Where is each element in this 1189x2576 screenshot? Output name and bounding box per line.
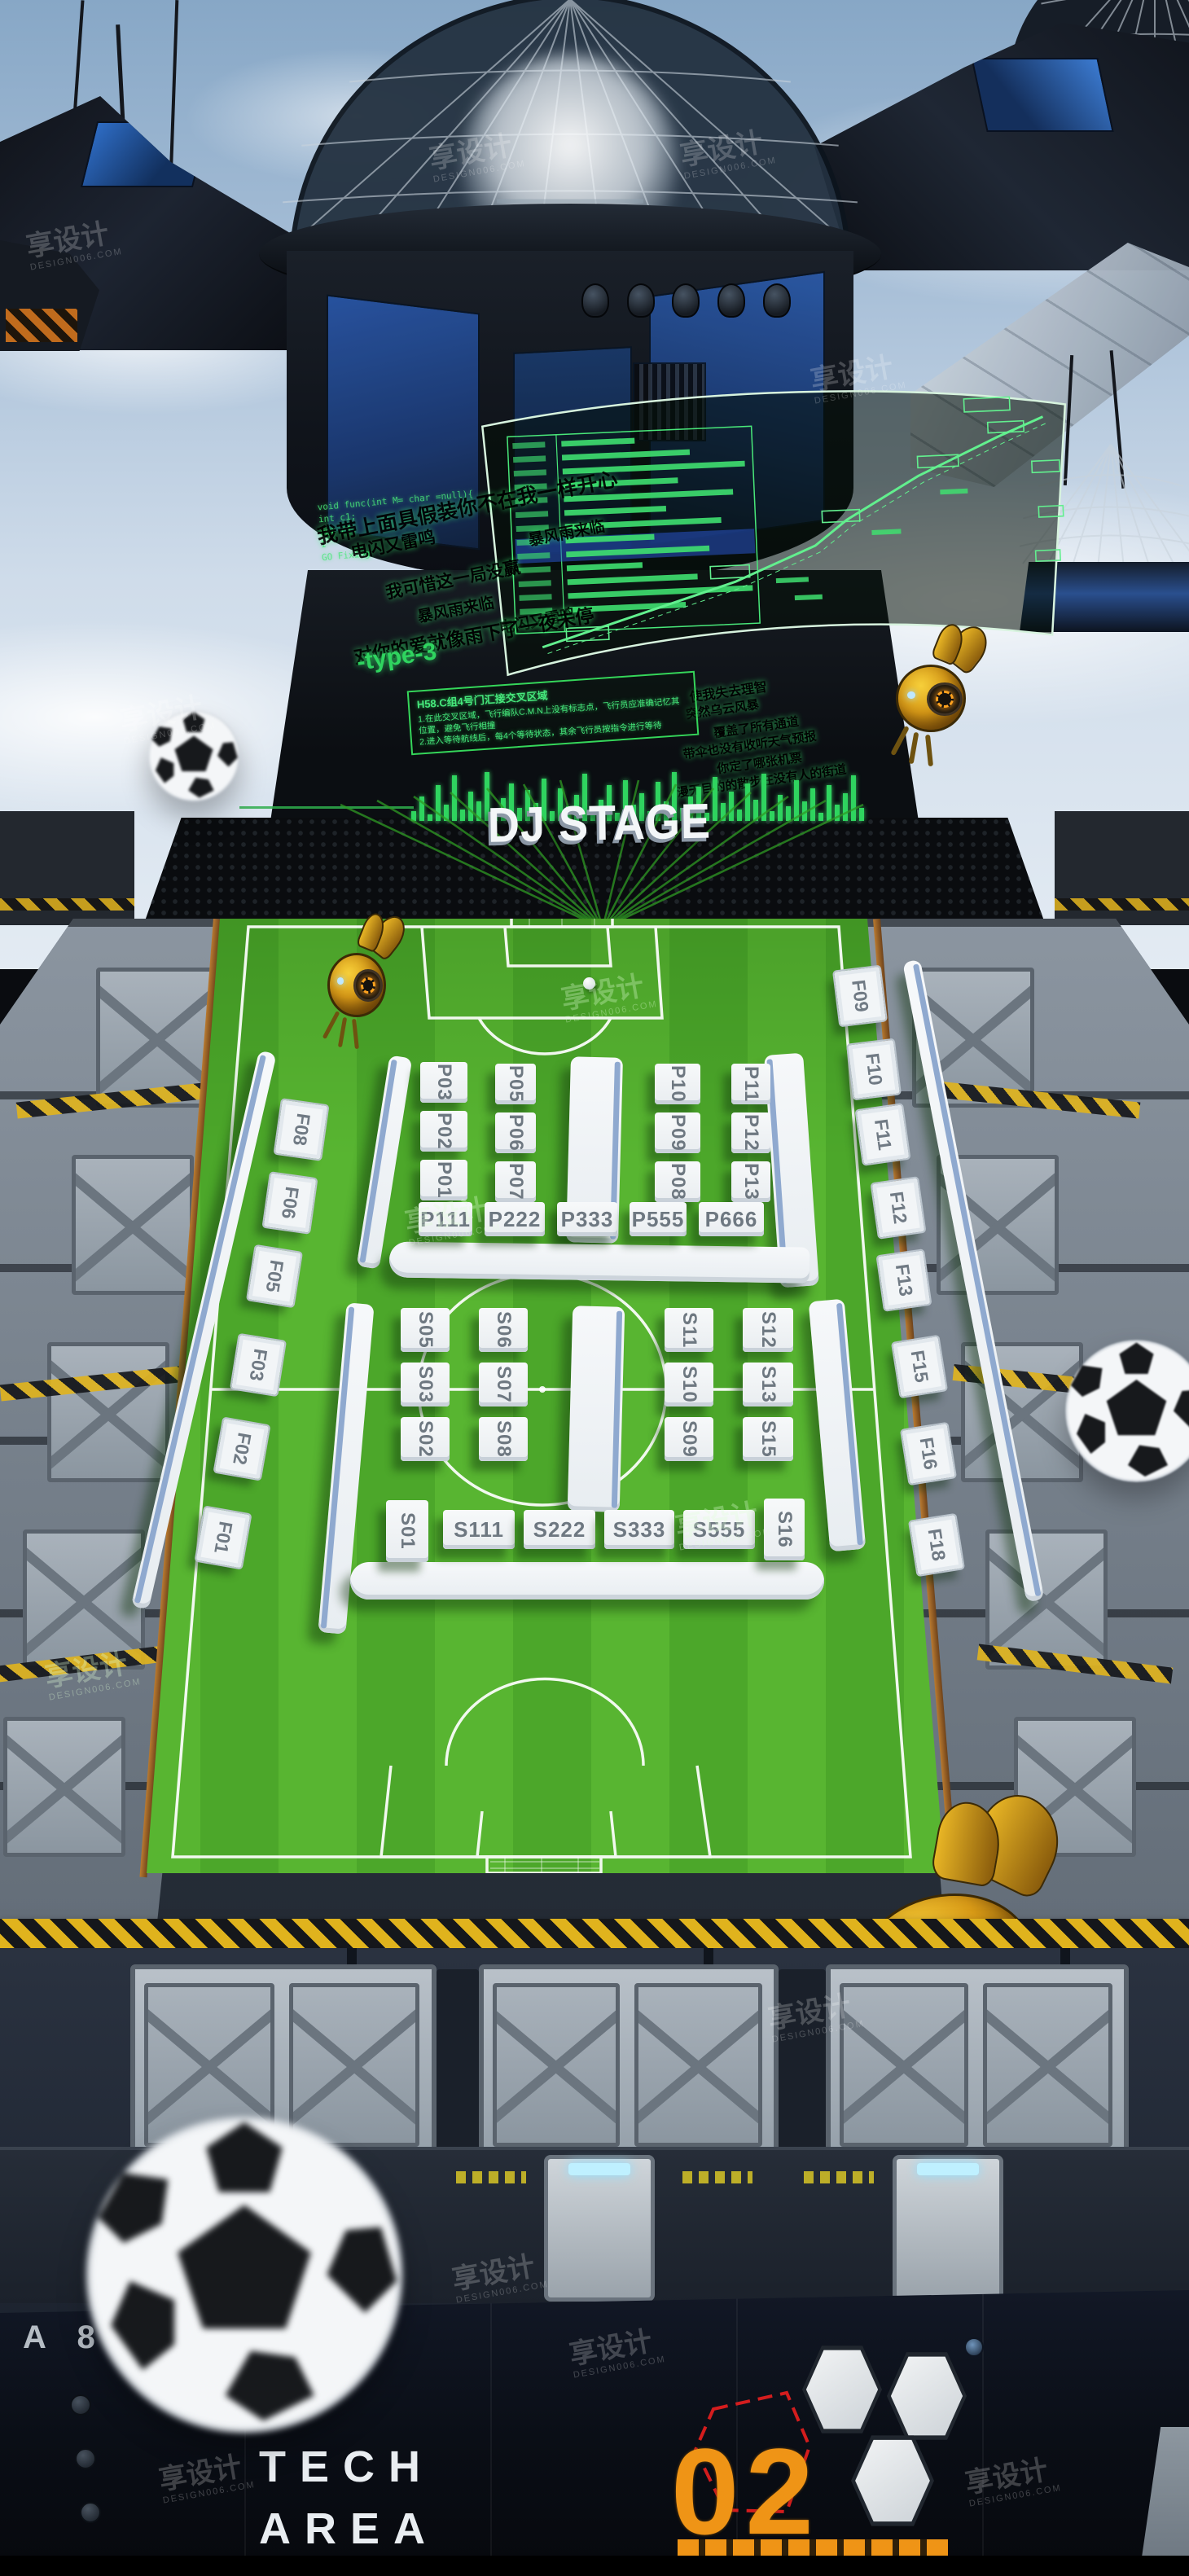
booth-S12[interactable]: S12	[743, 1308, 793, 1352]
deck-panel	[72, 1155, 194, 1295]
tech-area-text-line2: AREA	[259, 2504, 439, 2554]
deck-panel	[47, 1342, 169, 1482]
soccer-ball-large	[86, 2116, 403, 2433]
booth-column-s1: S05S03S02	[401, 1308, 450, 1461]
booth-F09[interactable]: F09	[834, 967, 886, 1025]
booth-S01[interactable]: S01	[386, 1500, 428, 1562]
booth-wall	[389, 1241, 810, 1283]
booth-F13[interactable]: F13	[878, 1250, 931, 1310]
booth-P07[interactable]: P07	[495, 1161, 536, 1202]
floor-bolt	[70, 2394, 91, 2416]
stand-corner-left	[0, 811, 134, 925]
floor-bolt	[75, 2448, 96, 2469]
booth-F18[interactable]: F18	[910, 1515, 963, 1575]
booth-P01[interactable]: P01	[420, 1160, 467, 1200]
booth-P111[interactable]: P111	[419, 1202, 472, 1236]
booth-column-s3: S11S10S09	[665, 1308, 713, 1461]
bay-seam	[437, 1969, 479, 2165]
deck-panel	[3, 1717, 125, 1857]
booth-P11[interactable]: P11	[731, 1064, 770, 1104]
booth-F08[interactable]: F08	[275, 1099, 328, 1159]
zone-number: 02	[671, 2430, 820, 2552]
booth-P12[interactable]: P12	[731, 1112, 770, 1153]
bay-panel	[826, 1964, 1129, 2170]
robot-drone	[892, 650, 989, 744]
booth-P08[interactable]: P08	[655, 1161, 700, 1202]
yellow-dash-strip	[682, 2171, 752, 2183]
booth-S555[interactable]: S555	[683, 1510, 755, 1549]
booth-P333[interactable]: P333	[557, 1202, 617, 1236]
booth-S10[interactable]: S10	[665, 1363, 713, 1406]
piston-unit	[544, 2155, 655, 2302]
booth-F10[interactable]: F10	[848, 1040, 900, 1099]
booth-wall	[568, 1306, 625, 1512]
booth-F16[interactable]: F16	[902, 1424, 955, 1484]
booth-column-p4: P11P12P13	[731, 1064, 770, 1202]
booth-P09[interactable]: P09	[655, 1112, 700, 1153]
booth-P02[interactable]: P02	[420, 1111, 467, 1152]
booth-S06[interactable]: S06	[479, 1308, 528, 1352]
booth-F11[interactable]: F11	[857, 1104, 910, 1164]
soccer-ball-top-left	[148, 710, 239, 801]
booth-S09[interactable]: S09	[665, 1417, 713, 1461]
booth-P13[interactable]: P13	[731, 1161, 770, 1202]
yellow-dash-strip	[456, 2171, 526, 2183]
bay-panel	[479, 1964, 779, 2170]
booth-F15[interactable]: F15	[893, 1336, 946, 1397]
booth-P555[interactable]: P555	[630, 1202, 687, 1236]
booth-S15[interactable]: S15	[743, 1417, 793, 1461]
booth-column-p2: P05P06P07	[495, 1064, 536, 1202]
hazard-stripe-row	[0, 1919, 1189, 1950]
deck-panel	[23, 1529, 145, 1670]
booth-S08[interactable]: S08	[479, 1417, 528, 1461]
booth-row-s: S111S222S333S555	[443, 1510, 755, 1549]
bolt-hole	[964, 2337, 984, 2357]
booth-F06[interactable]: F06	[264, 1173, 317, 1232]
booth-column-s4: S12S13S15	[743, 1308, 793, 1461]
soccer-ball-mini	[583, 977, 595, 990]
booth-P666[interactable]: P666	[699, 1202, 764, 1236]
yellow-dash-strip	[804, 2171, 874, 2183]
booth-column-p3: P10P09P08	[655, 1064, 700, 1202]
bottom-black-bar	[0, 2556, 1189, 2576]
booth-S222[interactable]: S222	[524, 1510, 595, 1549]
orange-text-strip	[678, 2539, 948, 2556]
booth-S333[interactable]: S333	[604, 1510, 674, 1549]
booth-F12[interactable]: F12	[872, 1178, 925, 1237]
booth-S11[interactable]: S11	[665, 1308, 713, 1352]
booth-S13[interactable]: S13	[743, 1363, 793, 1406]
booth-S111[interactable]: S111	[443, 1510, 515, 1549]
booth-F02[interactable]: F02	[215, 1419, 270, 1480]
tech-area-text-line1: TECH	[259, 2442, 434, 2492]
booth-wall	[350, 1562, 824, 1600]
piston-unit	[893, 2155, 1003, 2302]
booth-P222[interactable]: P222	[485, 1202, 545, 1236]
booth-S16[interactable]: S16	[764, 1499, 805, 1560]
booth-column-s2: S06S07S08	[479, 1308, 528, 1461]
dj-stage-title: DJ STAGE	[460, 792, 738, 854]
booth-P03[interactable]: P03	[420, 1062, 467, 1103]
booth-P06[interactable]: P06	[495, 1112, 536, 1153]
floor-bolt	[80, 2502, 101, 2523]
booth-F03[interactable]: F03	[231, 1335, 285, 1395]
booth-F05[interactable]: F05	[248, 1246, 301, 1306]
booth-column-p1: P03P02P01	[420, 1062, 467, 1200]
booth-S03[interactable]: S03	[401, 1363, 450, 1406]
booth-S02[interactable]: S02	[401, 1417, 450, 1461]
booth-P05[interactable]: P05	[495, 1064, 536, 1104]
robot-field	[324, 938, 406, 1028]
booth-P10[interactable]: P10	[655, 1064, 700, 1104]
booth-row-p: P111P222P333P555P666	[419, 1202, 764, 1236]
booth-S05[interactable]: S05	[401, 1308, 450, 1352]
bay-seam	[779, 1969, 826, 2165]
booth-F01[interactable]: F01	[196, 1507, 251, 1569]
venue-map-poster: void func(int M= char =null){ int c1; re…	[0, 0, 1189, 2576]
hazard-chevrons	[6, 309, 77, 342]
stand-corner-right	[1055, 811, 1189, 925]
booth-S07[interactable]: S07	[479, 1363, 528, 1406]
